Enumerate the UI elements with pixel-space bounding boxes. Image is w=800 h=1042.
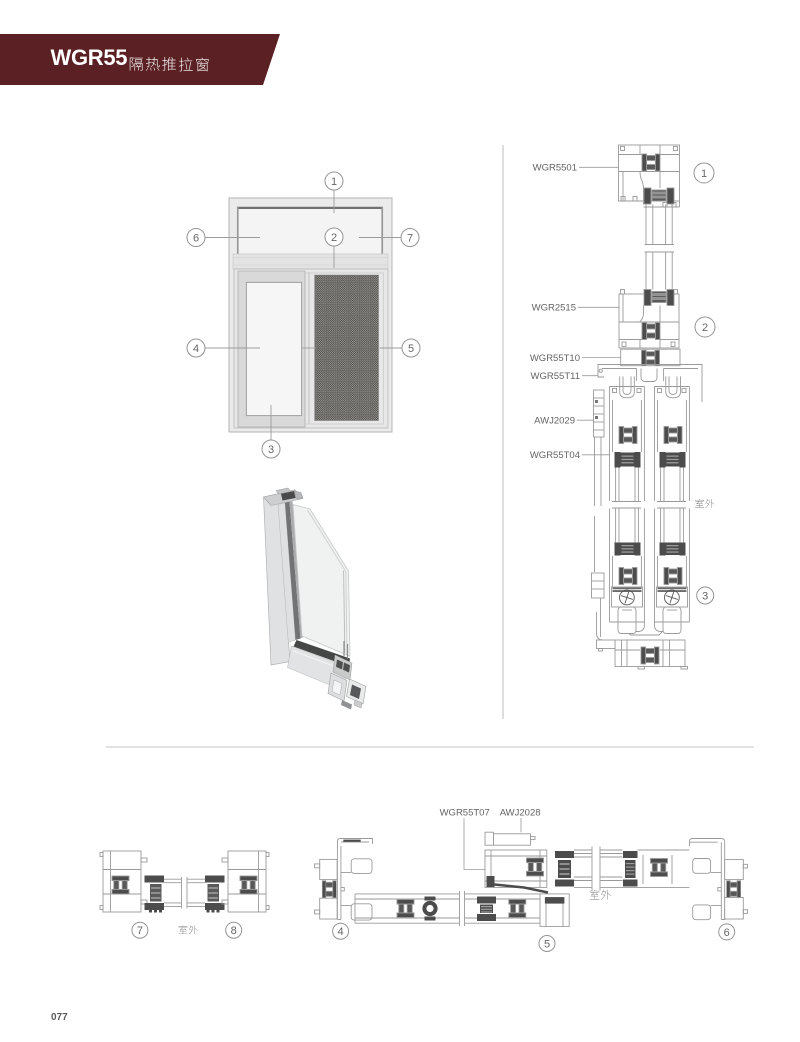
svg-text:5: 5 xyxy=(544,939,550,951)
svg-text:7: 7 xyxy=(407,233,413,245)
svg-text:WGR55T10: WGR55T10 xyxy=(530,353,580,364)
svg-text:WGR55T04: WGR55T04 xyxy=(530,450,580,461)
svg-text:6: 6 xyxy=(724,927,730,939)
svg-text:6: 6 xyxy=(193,233,199,245)
svg-text:4: 4 xyxy=(193,343,199,355)
svg-text:WGR5501: WGR5501 xyxy=(533,163,577,174)
svg-text:3: 3 xyxy=(268,444,274,456)
svg-text:8: 8 xyxy=(231,925,237,937)
svg-text:WGR55T11: WGR55T11 xyxy=(531,371,580,382)
svg-text:AWJ2028: AWJ2028 xyxy=(500,808,541,819)
svg-text:2: 2 xyxy=(702,322,708,334)
svg-text:5: 5 xyxy=(408,343,414,355)
svg-text:WGR2515: WGR2515 xyxy=(532,303,576,314)
svg-text:3: 3 xyxy=(702,591,708,603)
svg-text:1: 1 xyxy=(701,168,707,180)
svg-text:AWJ2029: AWJ2029 xyxy=(534,416,575,427)
svg-text:077: 077 xyxy=(51,1012,68,1023)
svg-text:4: 4 xyxy=(338,926,344,938)
svg-text:7: 7 xyxy=(137,925,143,937)
svg-text:2: 2 xyxy=(331,232,337,244)
svg-text:1: 1 xyxy=(331,176,337,188)
svg-text:WGR55T07: WGR55T07 xyxy=(440,808,490,819)
